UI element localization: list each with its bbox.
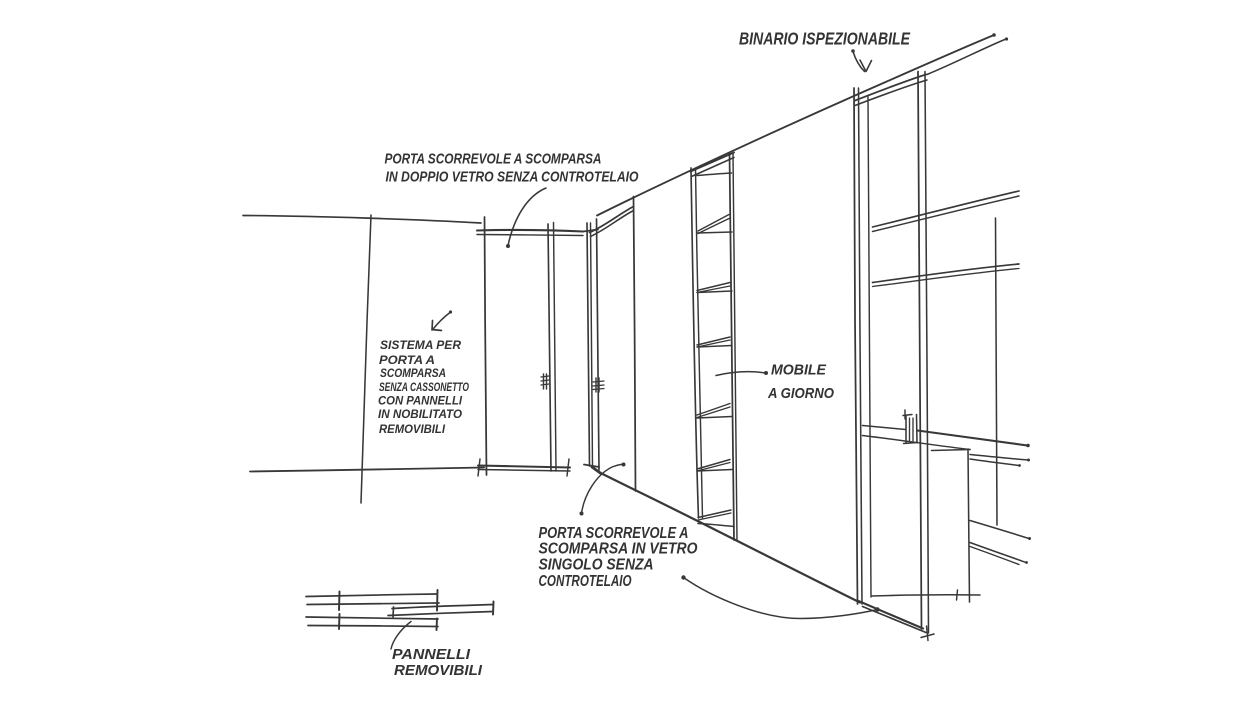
svg-text:MOBILE: MOBILE — [771, 362, 827, 379]
svg-text:CON PANNELLI: CON PANNELLI — [378, 394, 463, 408]
svg-text:PORTA SCORREVOLE A SCOMPARSA: PORTA SCORREVOLE A SCOMPARSA — [385, 151, 602, 168]
svg-text:IN NOBILITATO: IN NOBILITATO — [378, 407, 463, 421]
svg-text:REMOVIBILI: REMOVIBILI — [379, 422, 446, 436]
svg-text:PORTA SCORREVOLE A: PORTA SCORREVOLE A — [539, 525, 689, 542]
svg-text:SENZA CASSONETTO: SENZA CASSONETTO — [379, 380, 469, 394]
svg-text:PANNELLI: PANNELLI — [392, 646, 471, 663]
svg-text:CONTROTELAIO: CONTROTELAIO — [539, 573, 632, 590]
svg-text:IN DOPPIO VETRO SENZA CONTROTE: IN DOPPIO VETRO SENZA CONTROTELAIO — [386, 168, 639, 185]
svg-text:SCOMPARSA: SCOMPARSA — [380, 366, 446, 380]
svg-text:A GIORNO: A GIORNO — [767, 385, 834, 402]
svg-text:SCOMPARSA IN VETRO: SCOMPARSA IN VETRO — [539, 541, 698, 558]
svg-text:PORTA A: PORTA A — [379, 353, 435, 367]
svg-text:SISTEMA PER: SISTEMA PER — [380, 338, 461, 352]
svg-text:REMOVIBILI: REMOVIBILI — [394, 662, 483, 679]
svg-text:SINGOLO SENZA: SINGOLO SENZA — [539, 557, 654, 574]
svg-text:BINARIO ISPEZIONABILE: BINARIO ISPEZIONABILE — [739, 29, 911, 49]
